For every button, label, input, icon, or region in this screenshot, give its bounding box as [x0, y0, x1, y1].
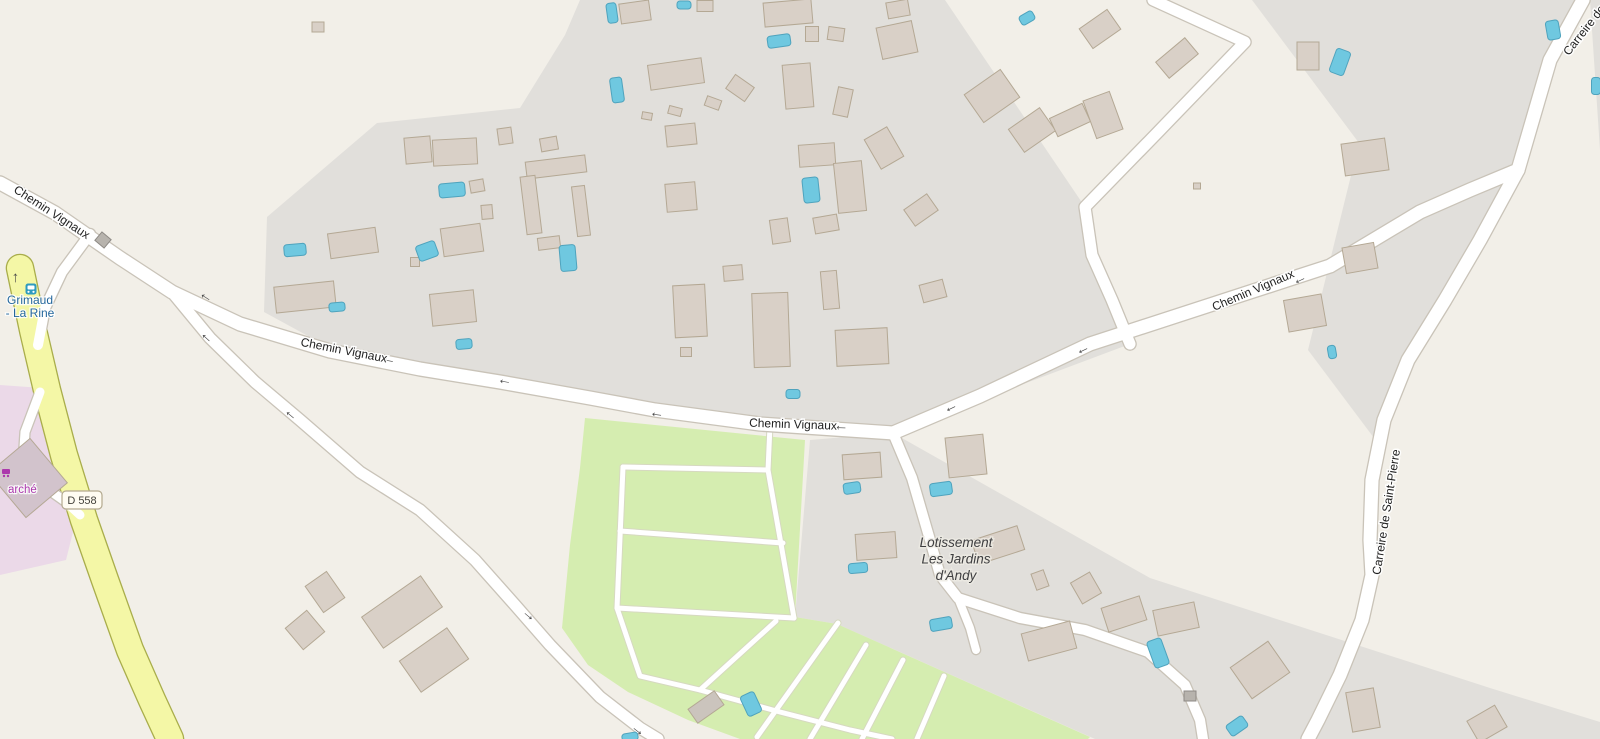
parcel-path	[623, 467, 768, 470]
building	[697, 1, 713, 12]
swimming-pool	[284, 243, 307, 257]
oneway-arrow-icon: ←	[648, 403, 665, 422]
supermarket-icon	[2, 469, 10, 474]
bus-stop-label: - La Rine	[6, 306, 55, 320]
building	[833, 161, 866, 214]
swimming-pool	[677, 1, 691, 9]
parcel-path	[768, 426, 770, 470]
building	[798, 143, 835, 167]
building	[665, 123, 697, 147]
swimming-pool	[329, 302, 346, 312]
building	[404, 136, 432, 164]
oneway-arrow-icon: ←	[9, 271, 26, 286]
swimming-pool	[1545, 20, 1561, 41]
place-name-label: d'Andy	[936, 568, 978, 583]
building	[665, 182, 697, 213]
swimming-pool	[606, 2, 619, 23]
bus-stop-label: Grimaud	[7, 293, 53, 307]
building	[1184, 691, 1196, 701]
swimming-pool	[929, 481, 953, 497]
building	[312, 22, 324, 32]
building	[945, 434, 987, 478]
swimming-pool	[767, 33, 791, 48]
building	[763, 0, 813, 27]
building	[1342, 242, 1378, 273]
supermarket-icon-wheel	[7, 475, 9, 477]
swimming-pool	[456, 338, 473, 349]
map-viewport[interactable]: ←←←←←←←←←←←→→Chemin VignauxChemin Vignau…	[0, 0, 1600, 739]
swimming-pool	[1327, 345, 1337, 359]
building	[769, 218, 790, 244]
building	[813, 214, 839, 234]
building	[497, 127, 513, 145]
building	[855, 532, 897, 561]
swimming-pool	[843, 481, 861, 494]
bus-stop-icon-window	[28, 286, 35, 290]
building	[723, 265, 743, 282]
building	[886, 0, 910, 19]
swimming-pool	[802, 177, 821, 204]
map-canvas[interactable]: ←←←←←←←←←←←→→Chemin VignauxChemin Vignau…	[0, 0, 1600, 739]
building	[876, 21, 918, 60]
swimming-pool	[848, 562, 868, 574]
building	[1284, 294, 1327, 332]
building	[481, 205, 493, 220]
supermarket-label: arché	[8, 484, 37, 496]
swimming-pool	[559, 244, 577, 271]
building	[1194, 183, 1201, 189]
building	[274, 281, 336, 313]
supermarket-icon-wheel	[3, 475, 5, 477]
building	[827, 26, 845, 41]
building	[1341, 138, 1389, 176]
place-name-label: Lotissement	[920, 535, 994, 550]
building	[411, 258, 420, 267]
building	[681, 348, 692, 357]
swimming-pool	[438, 182, 465, 198]
building	[806, 27, 819, 42]
building	[1297, 42, 1319, 70]
building	[469, 179, 485, 193]
oneway-arrow-icon: ←	[496, 370, 514, 389]
building	[842, 452, 882, 480]
place-name-label: Les Jardins	[921, 552, 990, 567]
building	[537, 236, 560, 251]
swimming-pool	[786, 390, 800, 399]
building	[673, 284, 708, 338]
building	[440, 223, 484, 256]
building	[835, 328, 889, 367]
building	[540, 136, 559, 152]
building	[782, 63, 814, 109]
building	[641, 112, 652, 121]
swimming-pool	[1592, 78, 1600, 95]
building	[619, 0, 651, 24]
building	[820, 270, 839, 309]
building	[429, 290, 476, 326]
building	[432, 138, 477, 166]
building	[752, 292, 791, 367]
route-ref-badge-text: D 558	[67, 495, 96, 507]
